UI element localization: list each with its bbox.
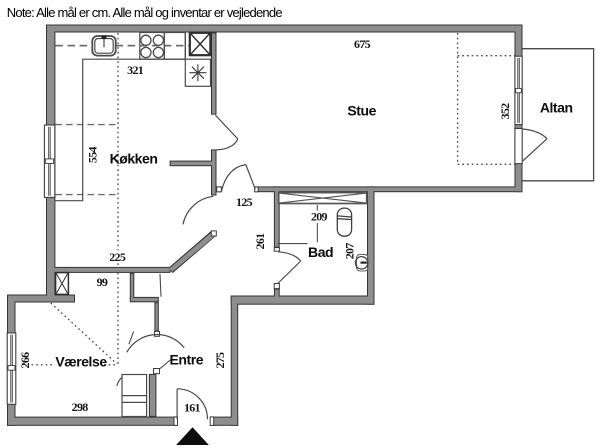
svg-text:261: 261 (253, 233, 267, 250)
svg-text:554: 554 (85, 146, 99, 163)
svg-text:209: 209 (311, 210, 328, 224)
svg-text:266: 266 (18, 352, 32, 369)
svg-text:161: 161 (184, 401, 201, 415)
svg-text:298: 298 (72, 400, 89, 414)
svg-text:225: 225 (109, 250, 126, 264)
svg-text:Værelse: Værelse (55, 353, 107, 369)
svg-text:Køkken: Køkken (110, 150, 158, 166)
svg-text:275: 275 (213, 352, 227, 369)
svg-text:321: 321 (127, 63, 144, 77)
svg-text:125: 125 (236, 195, 253, 209)
svg-text:Note: Alle mål er cm. Alle mål: Note: Alle mål er cm. Alle mål og invent… (7, 5, 283, 20)
svg-text:99: 99 (97, 275, 108, 289)
svg-text:675: 675 (354, 37, 371, 51)
svg-text:Altan: Altan (540, 99, 573, 115)
svg-text:Bad: Bad (308, 244, 333, 260)
svg-text:Stue: Stue (347, 102, 376, 118)
svg-text:207: 207 (343, 243, 357, 260)
svg-text:352: 352 (498, 103, 512, 120)
svg-text:Entre: Entre (170, 352, 204, 368)
